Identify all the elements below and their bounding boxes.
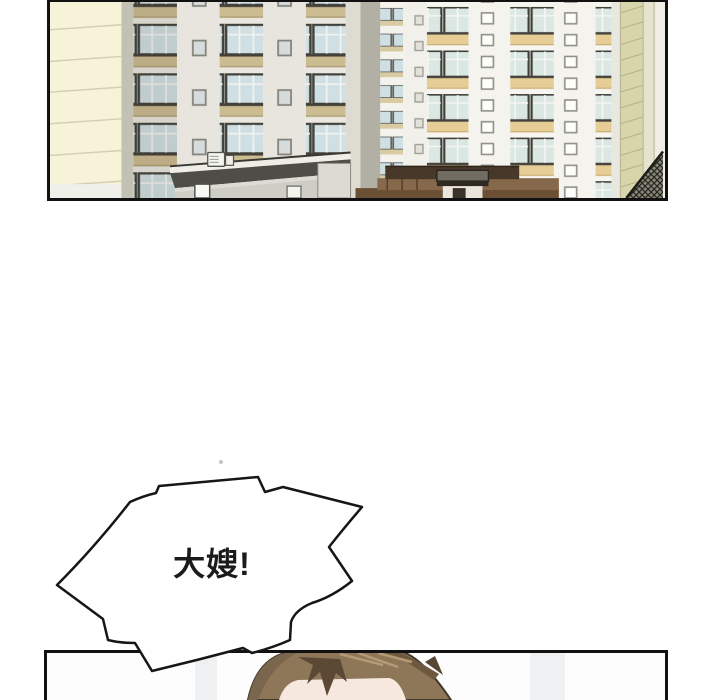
gatehouse xyxy=(437,170,489,198)
apartment-buildings-art xyxy=(50,2,665,198)
comic-page: 大嫂! xyxy=(0,0,720,700)
ink-speck xyxy=(219,460,223,464)
panel-apartment-buildings xyxy=(47,0,668,201)
speech-bubble-text: 大嫂! xyxy=(152,544,272,586)
cream-wall xyxy=(50,2,133,198)
